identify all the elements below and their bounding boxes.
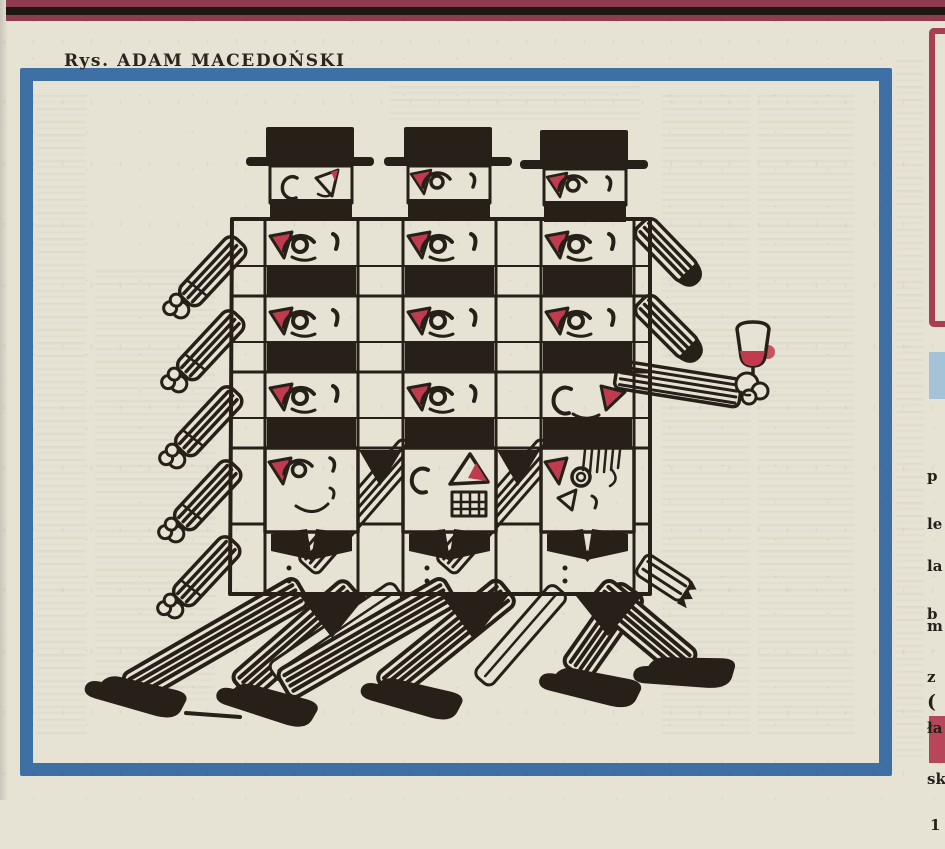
top-accent-stripe xyxy=(6,7,945,15)
right-column-outlined-box xyxy=(929,28,945,327)
page-edge-shadow xyxy=(0,0,8,800)
text-fragment: 1 xyxy=(930,785,940,849)
print-bleed-ghost xyxy=(95,270,215,700)
print-bleed-ghost xyxy=(758,95,854,735)
scanned-magazine-page: { "colors": { "paper": "#e6e3d5", "ink":… xyxy=(0,0,945,800)
print-bleed-ghost xyxy=(390,86,640,120)
text-fragment: ( xyxy=(927,662,940,726)
print-bleed-ghost xyxy=(896,60,924,760)
print-bleed-ghost xyxy=(662,95,750,735)
right-column-blue-box xyxy=(929,352,945,399)
caption: Rys. ADAM MACEDOŃSKI xyxy=(64,51,346,71)
print-bleed-ghost xyxy=(36,95,86,735)
top-accent-bar xyxy=(6,0,945,21)
